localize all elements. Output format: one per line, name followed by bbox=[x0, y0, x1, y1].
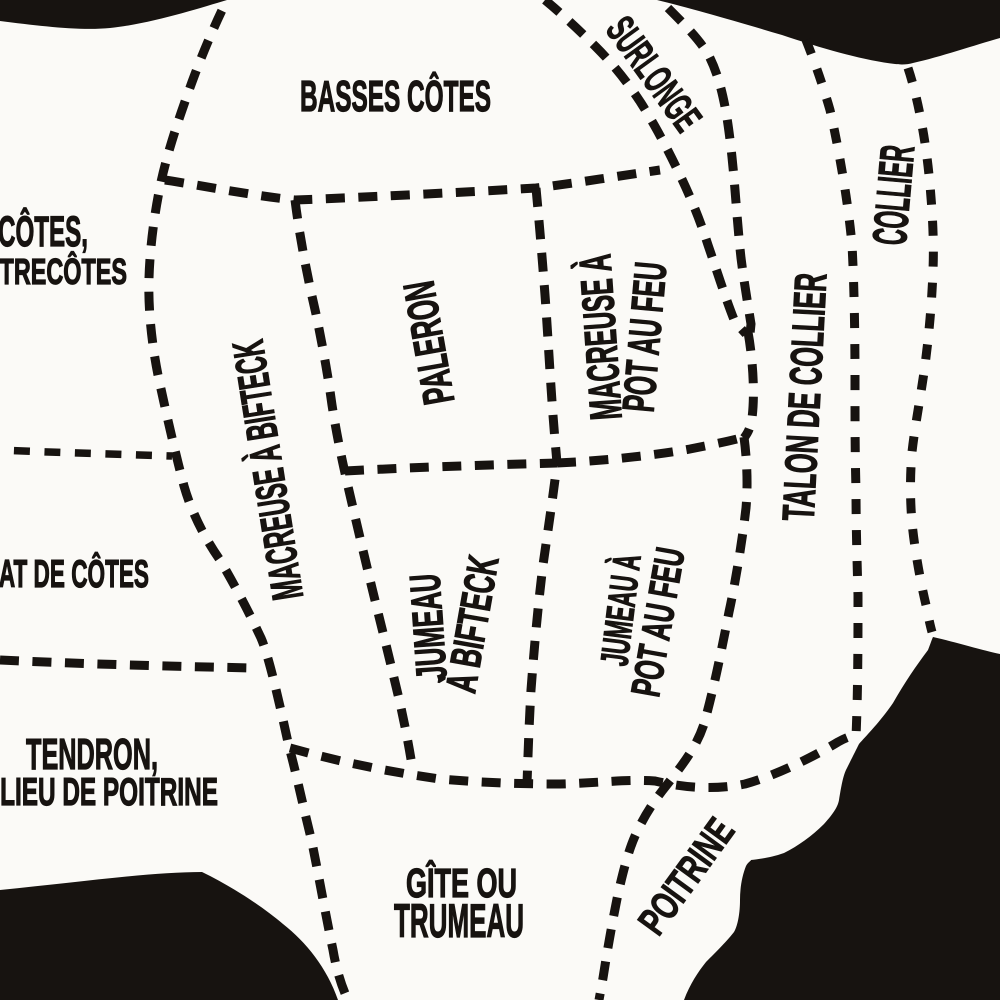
svg-text:ENTRECÔTES: ENTRECÔTES bbox=[0, 250, 127, 292]
svg-text:CÔTES,: CÔTES, bbox=[0, 207, 88, 256]
svg-text:TRUMEAU: TRUMEAU bbox=[394, 894, 524, 947]
svg-text:PLAT DE CÔTES: PLAT DE CÔTES bbox=[0, 551, 149, 596]
svg-text:MILIEU DE POITRINE: MILIEU DE POITRINE bbox=[0, 771, 218, 814]
svg-text:COLLIER: COLLIER bbox=[864, 143, 926, 247]
svg-text:BASSES CÔTES: BASSES CÔTES bbox=[300, 70, 491, 121]
